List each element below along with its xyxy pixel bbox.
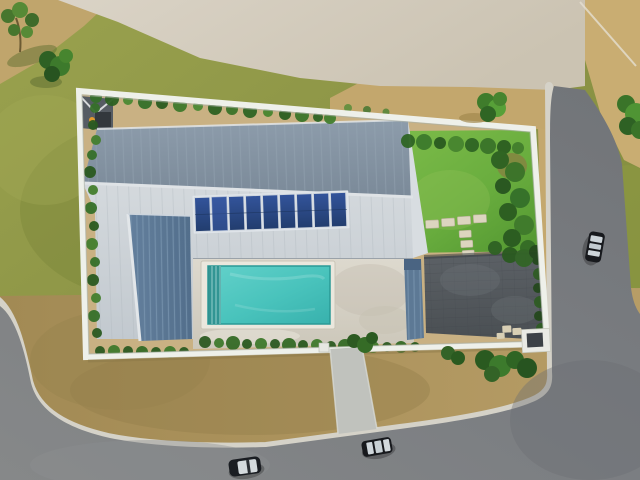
deck-mottle-3	[359, 306, 411, 334]
canopy-dark-end	[404, 259, 421, 270]
paver-mottle-1	[440, 264, 500, 296]
canopy-ribs	[404, 259, 424, 340]
west-gable	[128, 214, 192, 341]
property	[79, 91, 551, 361]
pool	[201, 261, 335, 329]
wall-pillar	[319, 343, 329, 352]
aerial-render	[0, 0, 640, 480]
solar-array	[192, 190, 349, 233]
aerial-scene	[0, 0, 640, 480]
solar-highlight	[211, 197, 227, 232]
paver-mottle-2	[491, 296, 539, 324]
gate-opening	[527, 333, 544, 348]
east-canopy	[404, 259, 424, 340]
pool-steps	[208, 266, 221, 324]
pool-courtyard	[193, 259, 414, 349]
